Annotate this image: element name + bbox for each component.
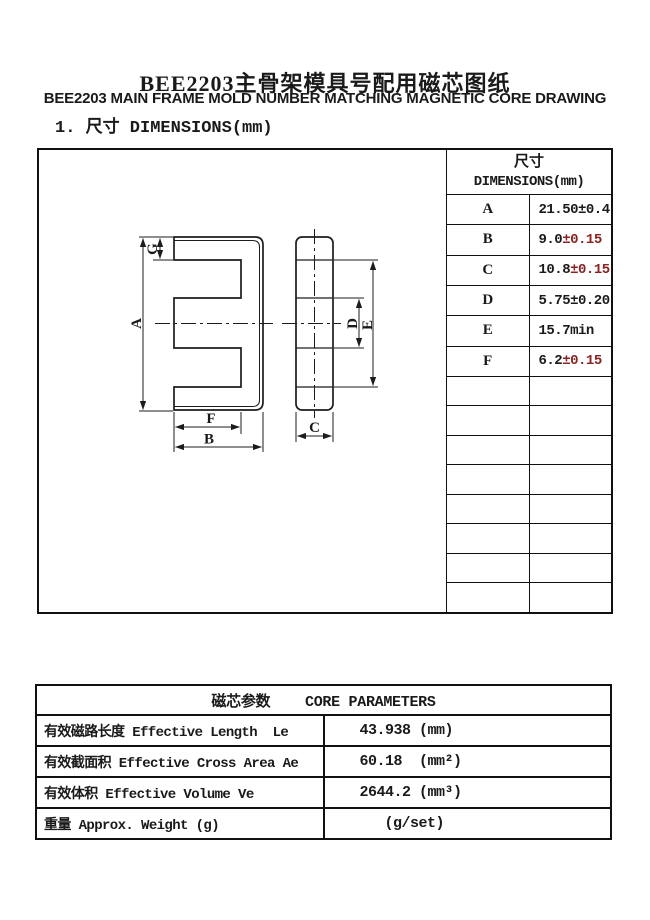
dim-letter: B: [447, 225, 530, 255]
dim-label-F: F: [206, 411, 215, 427]
dim-value: 5.75±0.20: [529, 285, 612, 315]
dim-label-G: G: [145, 243, 161, 255]
dimensions-table: 尺寸 DIMENSIONS(mm) A 21.50±0.4 B 9.0±0.15…: [446, 149, 612, 613]
empty-row: [447, 553, 612, 582]
empty-row: [447, 494, 612, 523]
empty-row: [447, 406, 612, 435]
table-row: C 10.8±0.15: [447, 255, 612, 285]
param-name: 重量 Approx. Weight (g): [36, 808, 324, 839]
document-page: BEE2203主骨架模具号配用磁芯图纸 BEE2203 MAIN FRAME M…: [0, 0, 650, 920]
dim-value: 10.8±0.15: [529, 255, 612, 285]
dim-value: 6.2±0.15: [529, 346, 612, 376]
empty-row: [447, 524, 612, 553]
dim-letter: E: [447, 316, 530, 346]
param-name: 有效磁路长度 Effective Length Le: [36, 715, 324, 746]
dim-label-C: C: [309, 420, 320, 436]
dim-letter: F: [447, 346, 530, 376]
table-row: A 21.50±0.4: [447, 194, 612, 224]
param-value: 43.938 (mm): [324, 715, 612, 746]
dim-value: 9.0±0.15: [529, 225, 612, 255]
table-row: 有效体积 Effective Volume Ve 2644.2 (mm³): [36, 777, 611, 808]
empty-row: [447, 583, 612, 613]
dim-letter: D: [447, 285, 530, 315]
dim-table-title-en: DIMENSIONS(mm): [447, 173, 611, 191]
param-value: 2644.2 (mm³): [324, 777, 612, 808]
dim-value: 21.50±0.4: [529, 194, 612, 224]
dim-letter: C: [447, 255, 530, 285]
core-params-title: 磁芯参数 CORE PARAMETERS: [36, 685, 611, 715]
core-technical-drawing: A G F B C D E: [39, 150, 449, 612]
table-row: D 5.75±0.20: [447, 285, 612, 315]
dimensions-section-box: A G F B C D E 尺寸 DIMENSIONS(mm) A 21.50±…: [37, 148, 613, 614]
dim-letter: A: [447, 194, 530, 224]
section1-heading: 1. 尺寸 DIMENSIONS(mm): [55, 112, 273, 138]
dim-table-title-cn: 尺寸: [447, 153, 611, 173]
param-name: 有效体积 Effective Volume Ve: [36, 777, 324, 808]
dim-value: 15.7min: [529, 316, 612, 346]
table-row: 有效磁路长度 Effective Length Le 43.938 (mm): [36, 715, 611, 746]
dim-label-D: D: [345, 318, 361, 329]
param-value: 60.18 (mm²): [324, 746, 612, 777]
table-header-row: 尺寸 DIMENSIONS(mm): [447, 150, 612, 195]
dim-label-E: E: [360, 320, 376, 330]
table-row: 重量 Approx. Weight (g) (g/set): [36, 808, 611, 839]
dim-label-A: A: [129, 318, 145, 329]
empty-row: [447, 465, 612, 494]
table-row: 有效截面积 Effective Cross Area Ae 60.18 (mm²…: [36, 746, 611, 777]
param-name: 有效截面积 Effective Cross Area Ae: [36, 746, 324, 777]
table-row: E 15.7min: [447, 316, 612, 346]
empty-row: [447, 435, 612, 464]
table-row: F 6.2±0.15: [447, 346, 612, 376]
table-row: B 9.0±0.15: [447, 225, 612, 255]
page-subtitle: BEE2203 MAIN FRAME MOLD NUMBER MATCHING …: [0, 90, 650, 107]
empty-row: [447, 376, 612, 405]
table-header-row: 磁芯参数 CORE PARAMETERS: [36, 685, 611, 715]
core-parameters-table: 磁芯参数 CORE PARAMETERS 有效磁路长度 Effective Le…: [35, 684, 612, 840]
param-value: (g/set): [324, 808, 612, 839]
dim-label-B: B: [204, 432, 214, 448]
